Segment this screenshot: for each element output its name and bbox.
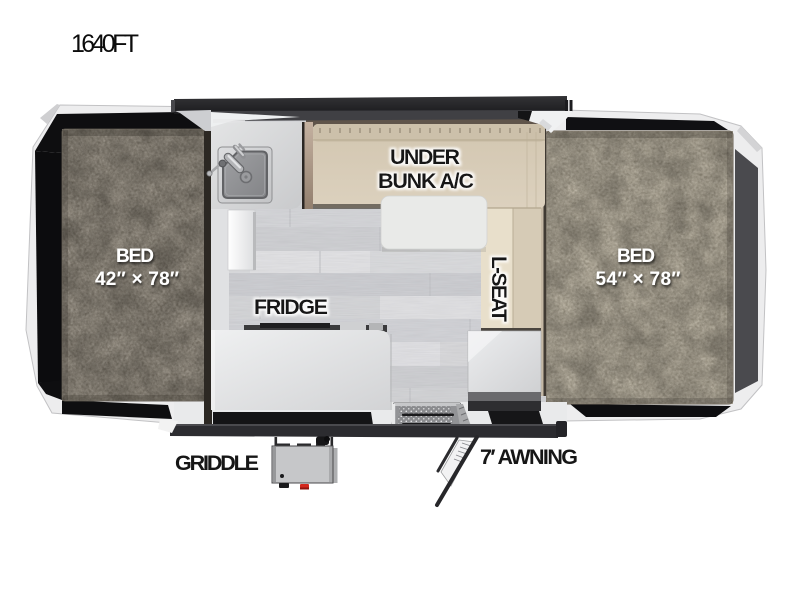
svg-text:GRIDDLE: GRIDDLE	[175, 451, 259, 475]
svg-text:1640FT: 1640FT	[71, 30, 139, 58]
svg-text:L-SEAT: L-SEAT	[487, 256, 510, 322]
svg-text:42″ × 78″: 42″ × 78″	[95, 269, 179, 290]
svg-text:FRIDGE: FRIDGE	[254, 295, 328, 319]
svg-text:BUNK A/C: BUNK A/C	[378, 169, 474, 193]
svg-text:UNDER: UNDER	[390, 145, 460, 169]
svg-text:7′ AWNING: 7′ AWNING	[480, 445, 578, 469]
svg-text:BED: BED	[617, 246, 655, 267]
svg-text:54″ × 78″: 54″ × 78″	[596, 269, 681, 290]
svg-text:BED: BED	[116, 246, 154, 267]
